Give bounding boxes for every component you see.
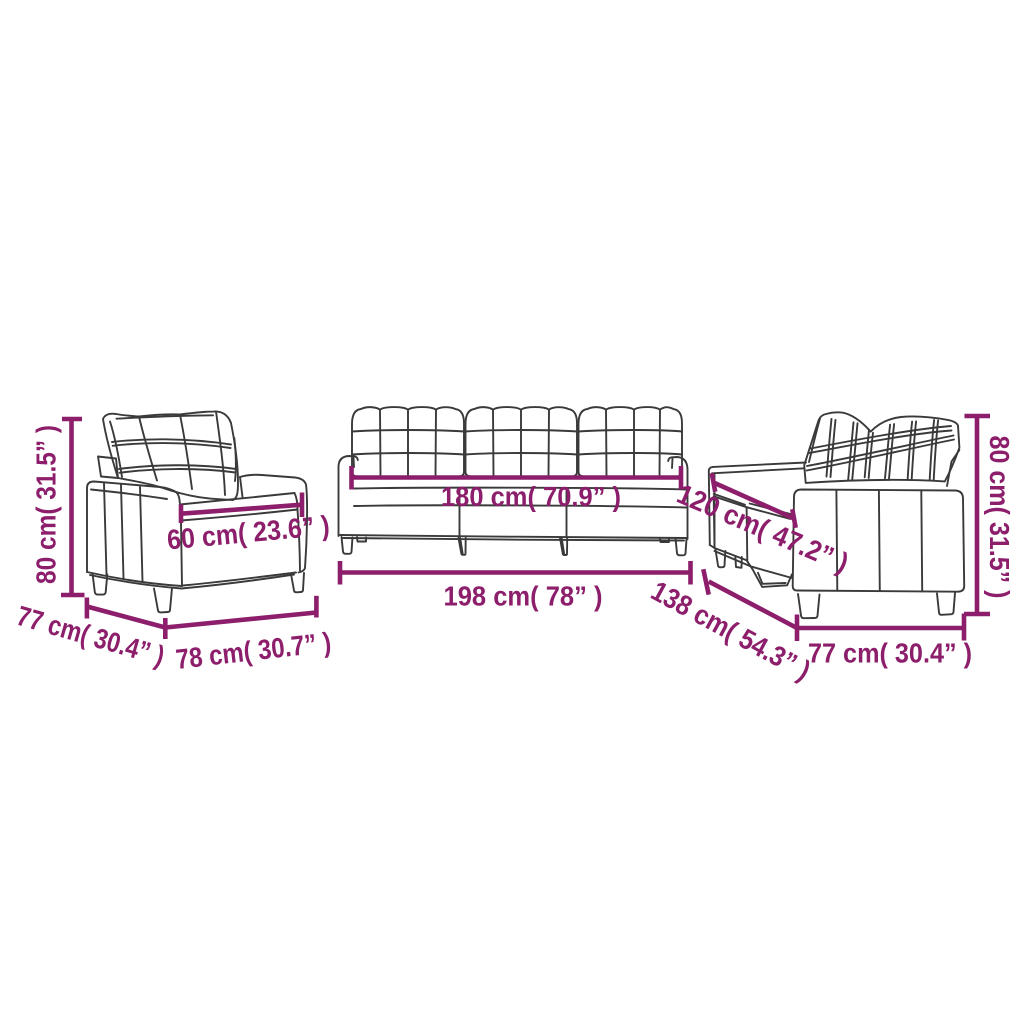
svg-text:80 cm( 31.5” ): 80 cm( 31.5” ) xyxy=(31,425,62,584)
svg-text:80 cm( 31.5” ): 80 cm( 31.5” ) xyxy=(984,436,1015,599)
svg-text:198 cm( 78” ): 198 cm( 78” ) xyxy=(444,581,603,612)
svg-text:180 cm( 70.9” ): 180 cm( 70.9” ) xyxy=(441,481,621,512)
svg-text:77 cm( 30.4” ): 77 cm( 30.4” ) xyxy=(808,638,972,669)
